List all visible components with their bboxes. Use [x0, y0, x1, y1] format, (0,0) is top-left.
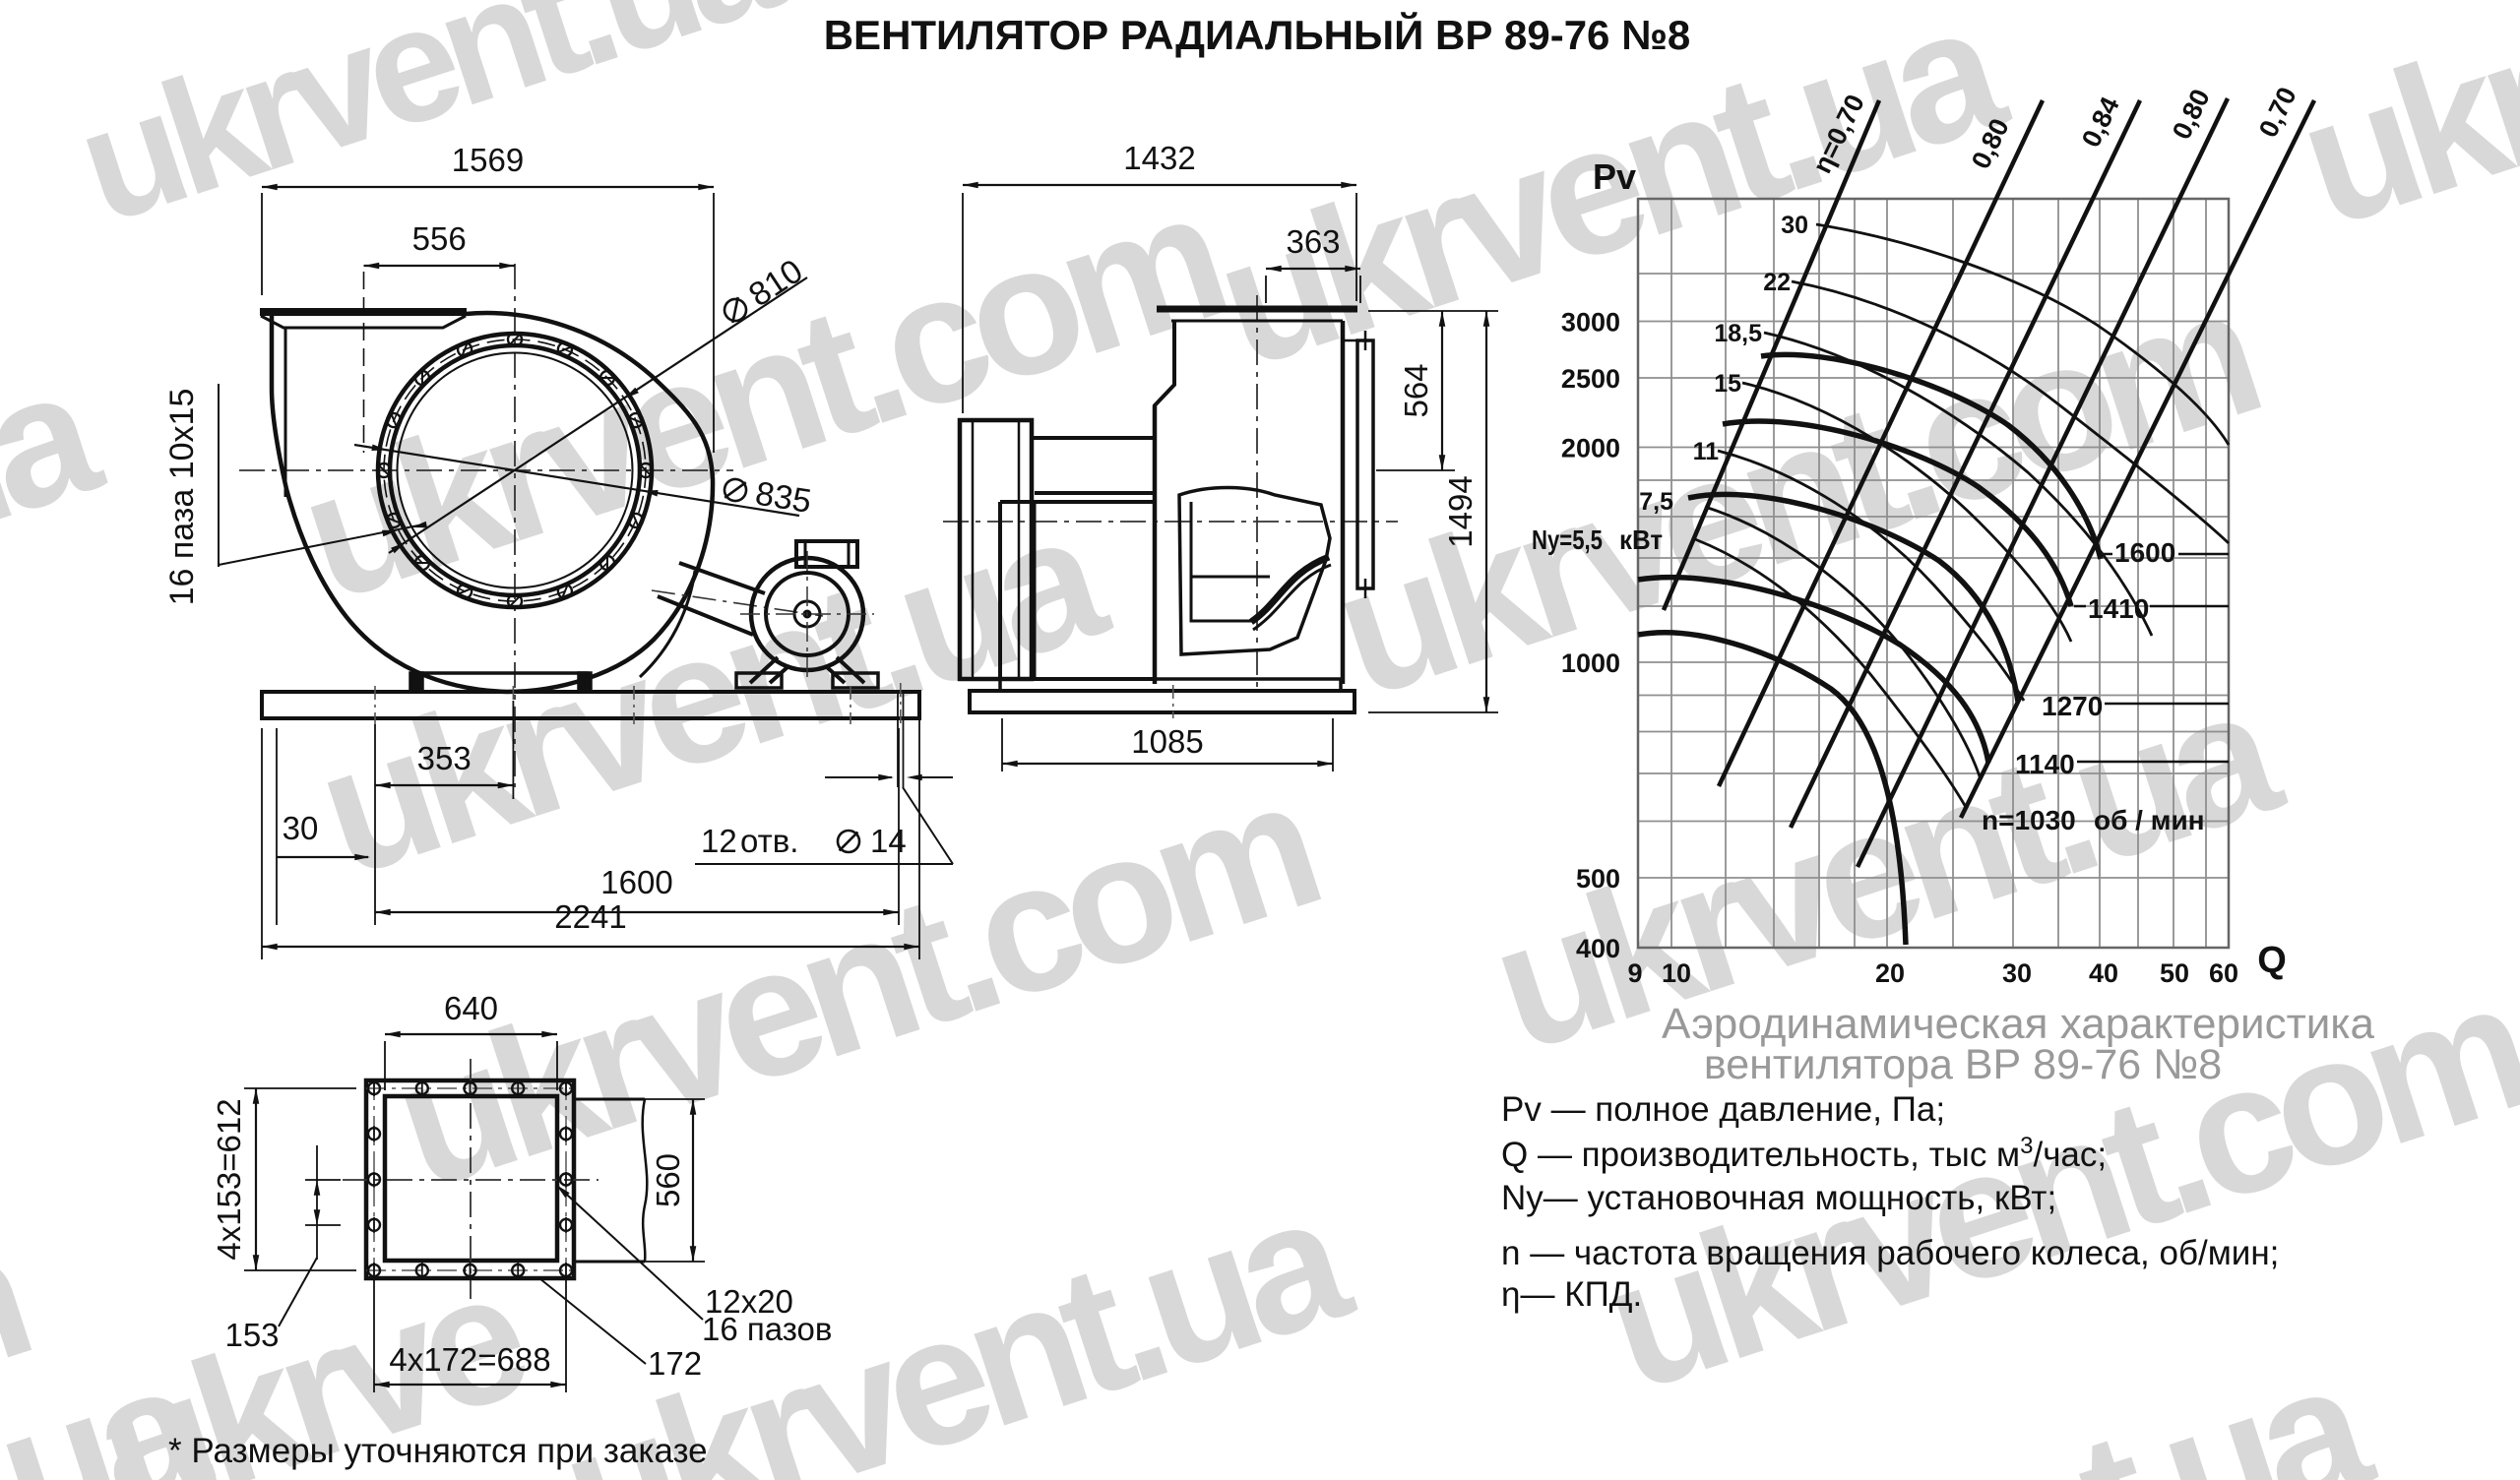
- svg-text:2241: 2241: [554, 898, 626, 935]
- svg-text:n — частота вращения рабочего: n — частота вращения рабочего колеса, об…: [1501, 1234, 2279, 1272]
- svg-text:363: 363: [1286, 223, 1340, 260]
- svg-text:1085: 1085: [1131, 723, 1203, 760]
- svg-text:n=1030: n=1030: [1982, 805, 2076, 835]
- svg-text:353: 353: [417, 740, 472, 776]
- svg-text:1270: 1270: [2042, 691, 2103, 721]
- svg-text:1494: 1494: [1442, 475, 1479, 547]
- svg-text:500: 500: [1576, 864, 1620, 894]
- svg-text:50: 50: [2160, 958, 2189, 988]
- svg-text:Q — производительность, тыс м: Q — производительность, тыс м3/час;: [1501, 1133, 2107, 1174]
- svg-text:556: 556: [412, 220, 467, 257]
- svg-text:1432: 1432: [1123, 140, 1195, 176]
- svg-text:2500: 2500: [1561, 364, 1620, 394]
- svg-text:16 пазов: 16 пазов: [702, 1311, 832, 1347]
- svg-text:Q: Q: [2257, 940, 2287, 981]
- svg-text:153: 153: [224, 1317, 279, 1353]
- svg-text:172: 172: [648, 1345, 702, 1382]
- svg-text:40: 40: [2089, 958, 2118, 988]
- svg-text:1569: 1569: [452, 142, 524, 178]
- svg-text:12: 12: [701, 823, 737, 859]
- svg-text:20: 20: [1875, 958, 1905, 988]
- svg-text:вентилятора ВР 89-76 №8: вентилятора ВР 89-76 №8: [1704, 1041, 2222, 1088]
- svg-text:1410: 1410: [2088, 593, 2149, 624]
- svg-text:22: 22: [1763, 269, 1791, 296]
- svg-text:об / мин: об / мин: [2094, 805, 2205, 835]
- svg-text:30: 30: [1781, 212, 1808, 239]
- svg-text:Pv: Pv: [1593, 156, 1636, 197]
- svg-text:* Размеры уточняются при заказ: * Размеры уточняются при заказе: [168, 1432, 708, 1470]
- svg-text:отв.: отв.: [740, 823, 798, 859]
- svg-text:16 паза 10х15: 16 паза 10х15: [163, 389, 201, 606]
- svg-text:1600: 1600: [2114, 537, 2175, 568]
- svg-text:4х153=612: 4х153=612: [211, 1098, 247, 1260]
- svg-text:30: 30: [283, 810, 319, 846]
- svg-text:кВт: кВт: [1619, 524, 1663, 555]
- svg-text:1000: 1000: [1561, 648, 1620, 678]
- svg-text:Pv — полное давление, Па;: Pv — полное давление, Па;: [1501, 1090, 1945, 1129]
- svg-text:15: 15: [1714, 370, 1741, 398]
- svg-text:4х172=688: 4х172=688: [389, 1341, 550, 1378]
- svg-text:640: 640: [444, 990, 498, 1026]
- svg-text:Ny— установочная мощность, кВт: Ny— установочная мощность, кВт;: [1501, 1179, 2056, 1217]
- svg-text:η— КПД.: η— КПД.: [1501, 1275, 1642, 1314]
- svg-text:9: 9: [1627, 958, 1642, 988]
- svg-text:60: 60: [2209, 958, 2238, 988]
- svg-text:10: 10: [1662, 958, 1691, 988]
- svg-text:3000: 3000: [1561, 308, 1620, 338]
- svg-text:18,5: 18,5: [1714, 320, 1762, 347]
- svg-text:1600: 1600: [600, 864, 672, 900]
- svg-text:560: 560: [650, 1153, 686, 1207]
- svg-text:2000: 2000: [1561, 434, 1620, 463]
- svg-text:ВЕНТИЛЯТОР РАДИАЛЬНЫЙ ВР 89-76: ВЕНТИЛЯТОР РАДИАЛЬНЫЙ ВР 89-76 №8: [824, 11, 1691, 58]
- svg-text:1140: 1140: [2015, 749, 2075, 779]
- svg-text:Ny=5,5: Ny=5,5: [1532, 524, 1603, 555]
- svg-text:11: 11: [1693, 438, 1720, 465]
- svg-text:7,5: 7,5: [1639, 488, 1673, 516]
- svg-text:30: 30: [2002, 958, 2032, 988]
- svg-text:400: 400: [1576, 934, 1620, 963]
- svg-text:564: 564: [1398, 363, 1434, 417]
- svg-text:14: 14: [870, 823, 907, 859]
